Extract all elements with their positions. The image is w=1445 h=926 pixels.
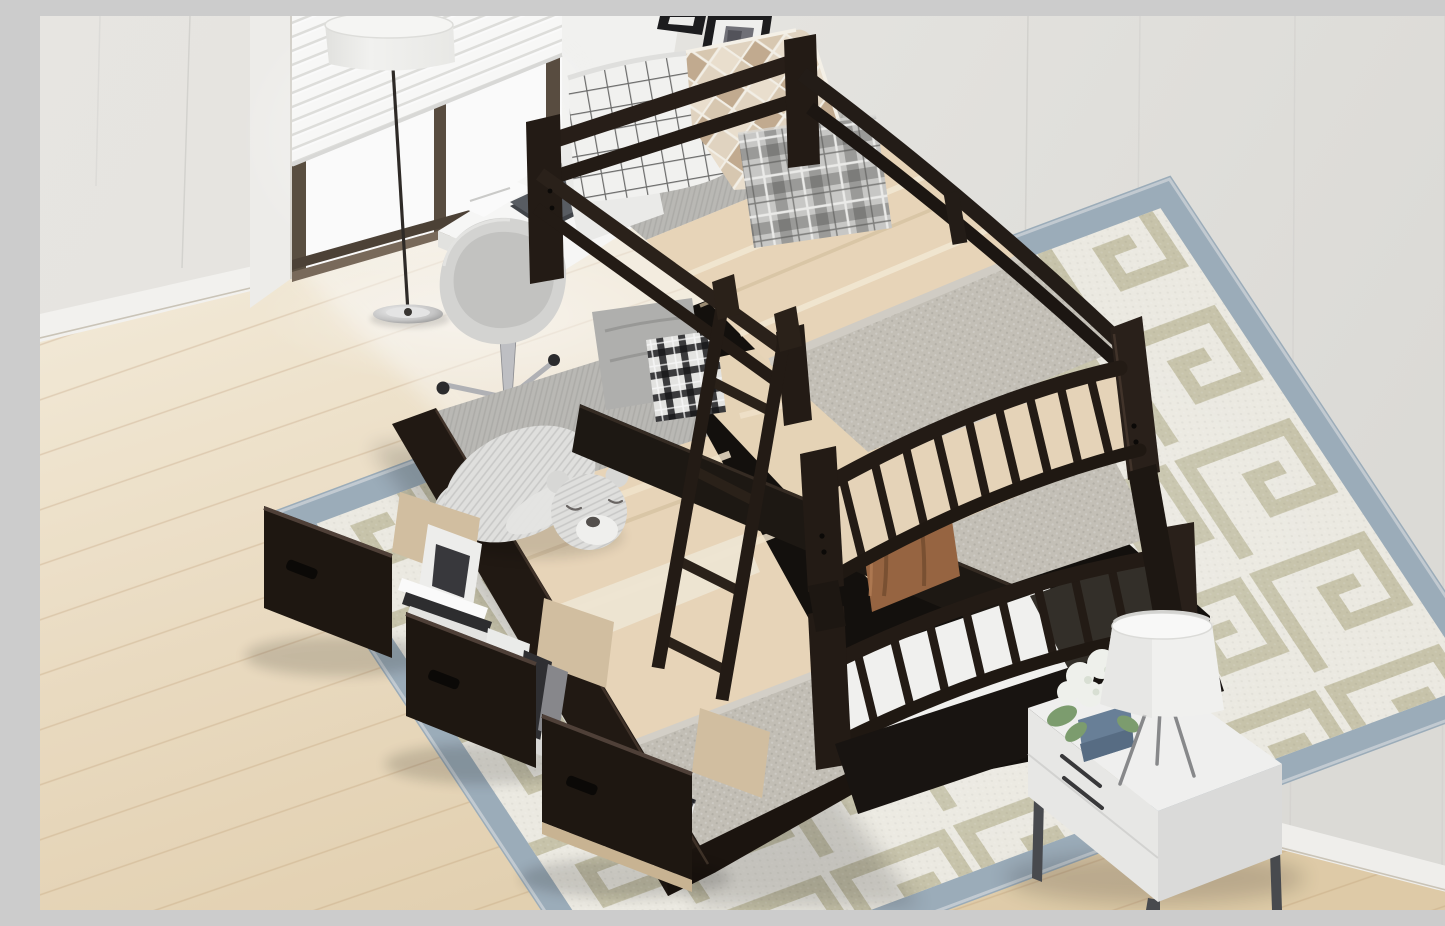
- bedroom-photo: [40, 16, 1445, 910]
- vignette: [40, 16, 1445, 910]
